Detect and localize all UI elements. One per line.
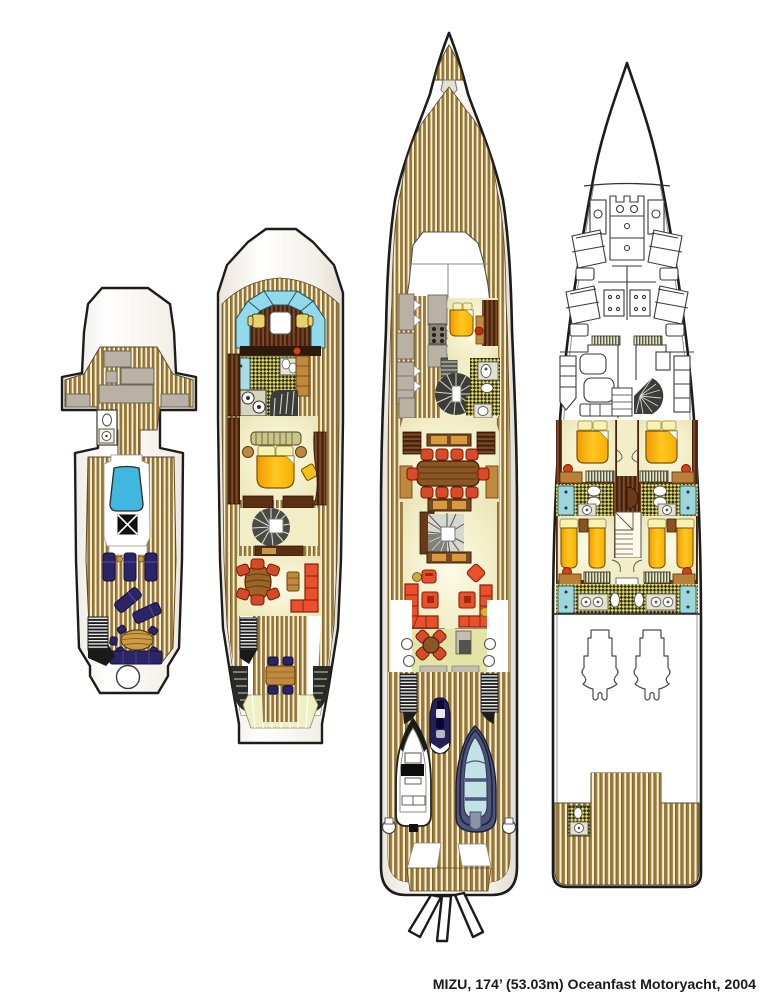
svg-text:MIZU, 174’ (53.03m) Oceanfast: MIZU, 174’ (53.03m) Oceanfast Motoryacht… bbox=[433, 977, 756, 993]
